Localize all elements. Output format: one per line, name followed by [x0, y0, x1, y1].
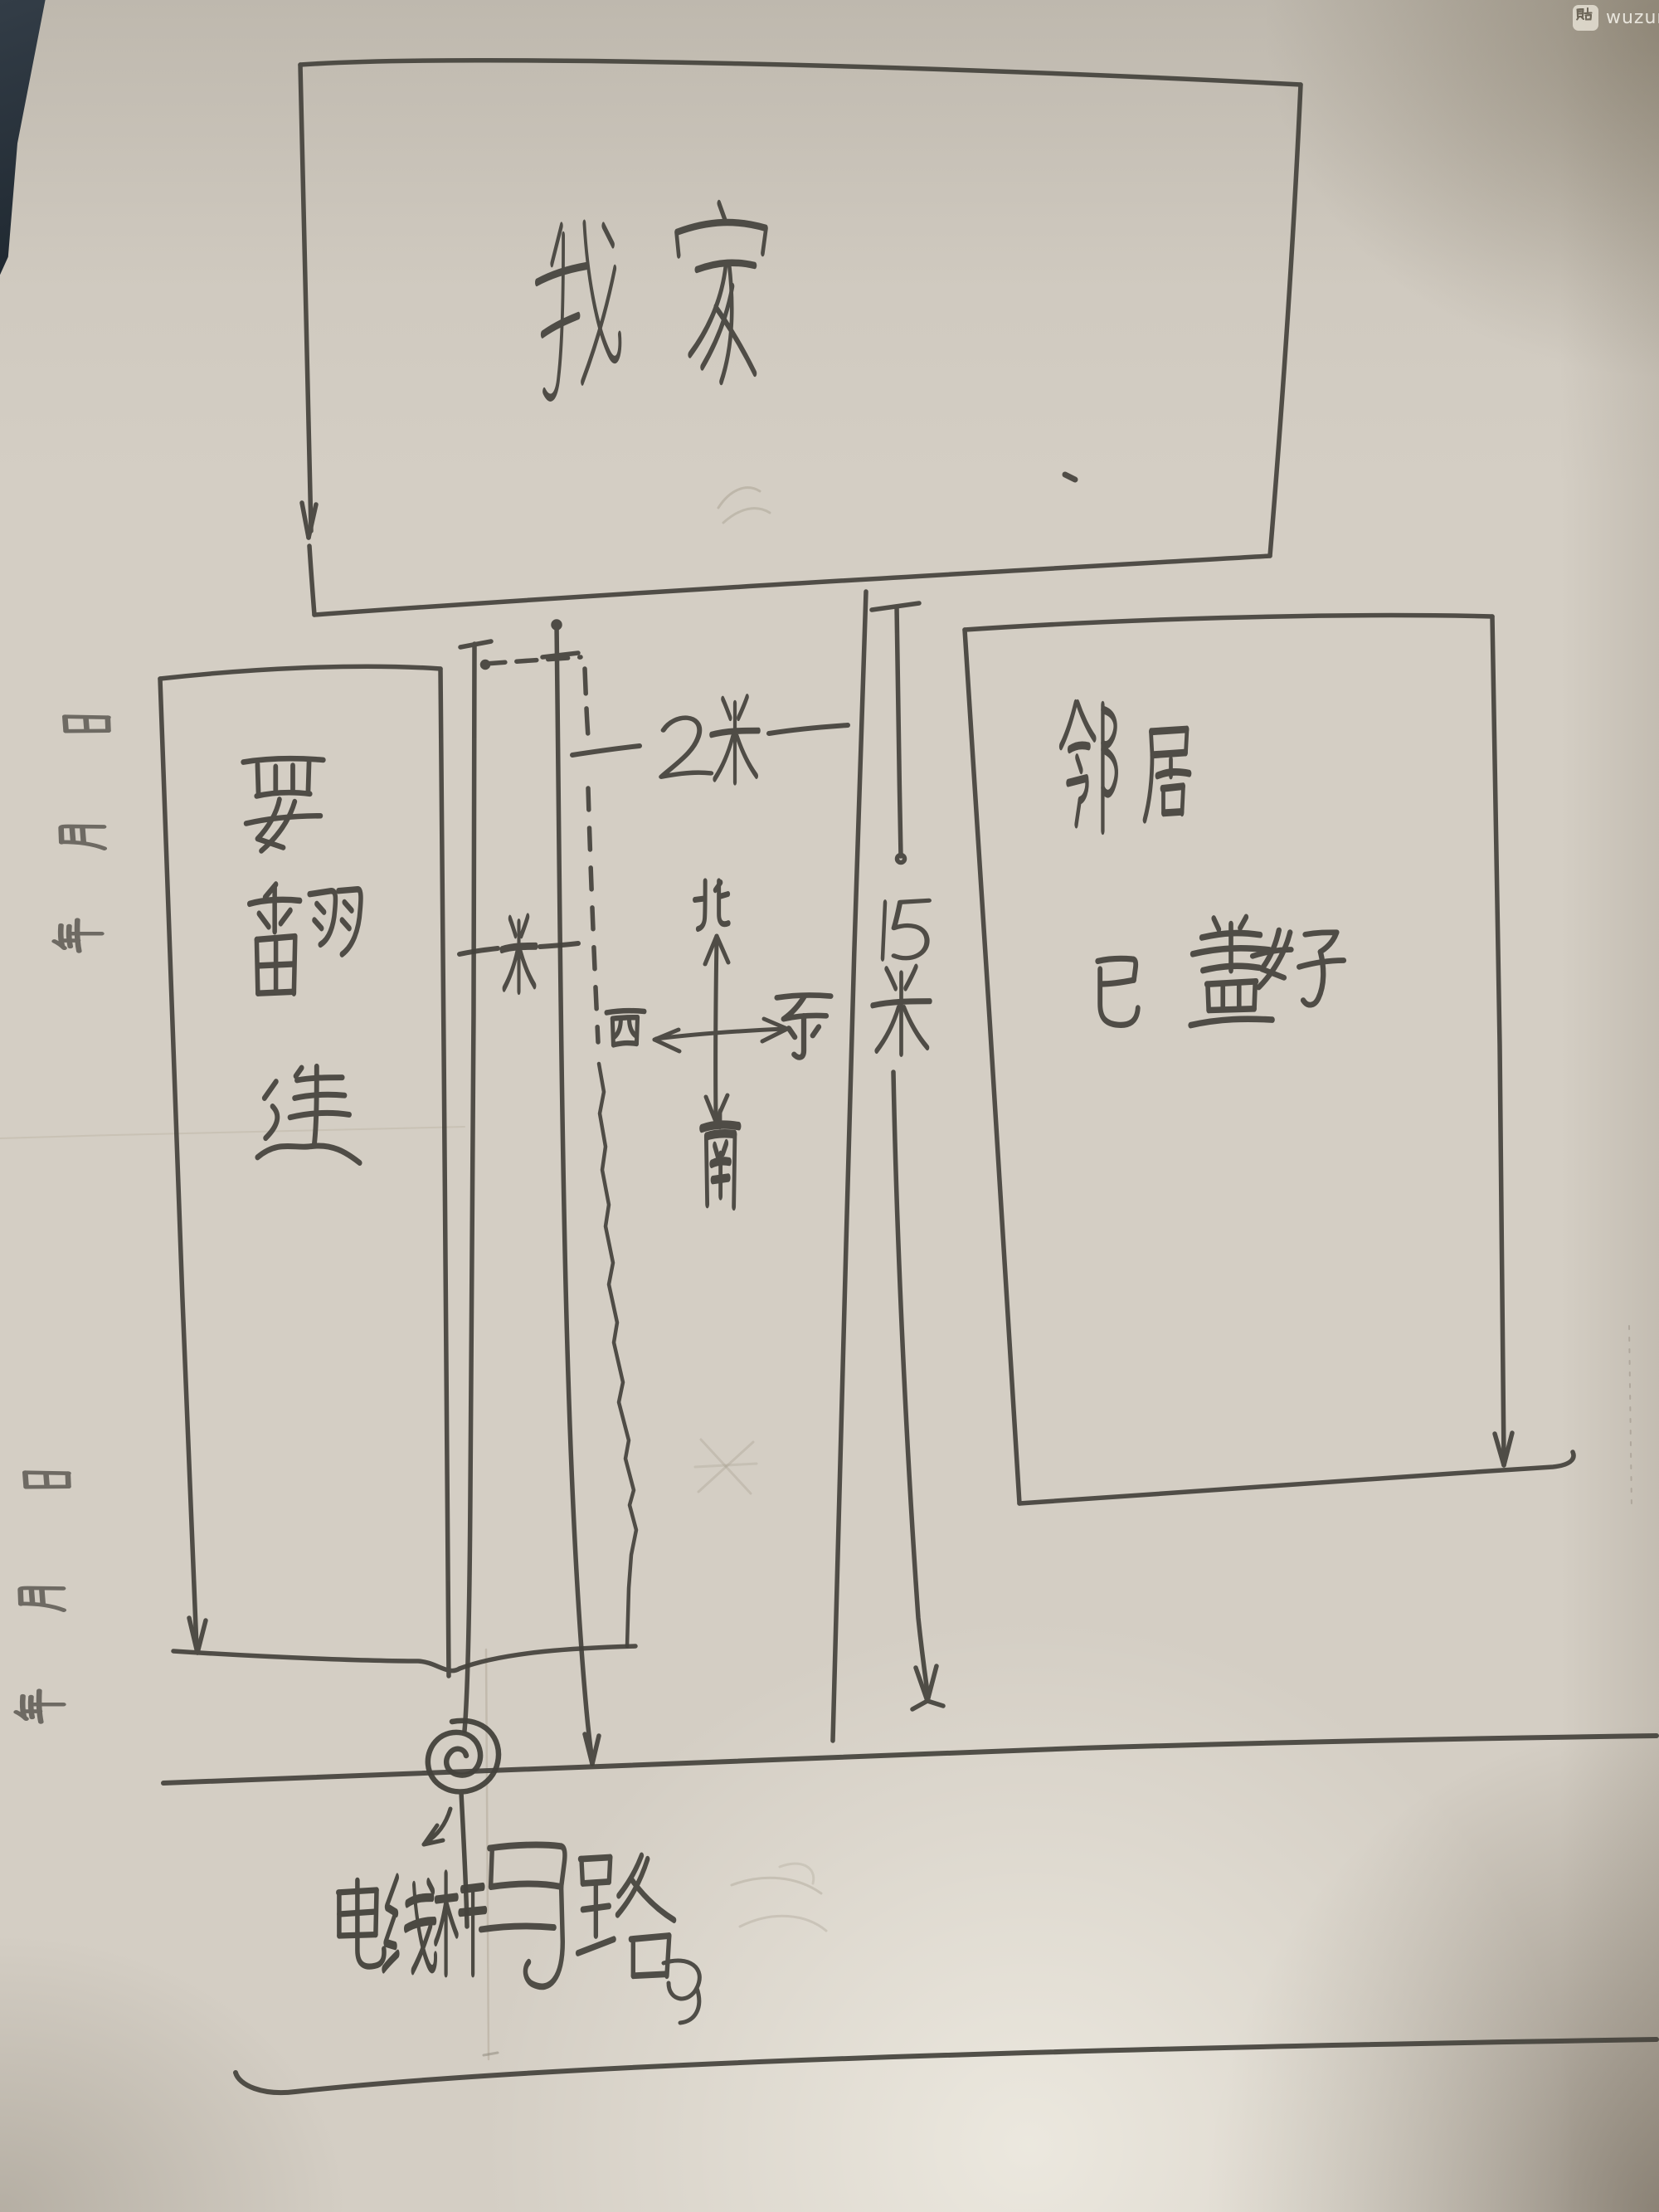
margin-day-2 [25, 1473, 68, 1487]
pole-spiral-symbol [428, 1721, 499, 1792]
pencil-marks [0, 488, 1632, 2059]
neighbor-distance-text: 15米 [871, 900, 967, 1051]
neighbor-status-text: 已盖好 [1078, 929, 1352, 1062]
road-top-edge [163, 1736, 1657, 1783]
my-home-text: 我家 [523, 216, 888, 480]
boundary-lines [460, 621, 636, 1764]
fifteen-meter-dimension [872, 603, 943, 1709]
margin-month-1 [61, 826, 105, 849]
west-text: 西 [604, 1008, 649, 1074]
watermark-text: wuzung [1606, 7, 1659, 28]
pole-text: 电线杆 [336, 1892, 510, 1976]
rebuild-text: 要翻建 [241, 755, 408, 1104]
right-boundary-line [833, 592, 866, 1741]
south-text: 南 [697, 1116, 763, 1212]
middle-gap-text: 2米 [655, 705, 777, 813]
margin-day-1 [65, 717, 108, 731]
west-gap-text: 一米 [460, 921, 577, 1005]
margin-year-2 [17, 1691, 64, 1722]
margin-print [17, 717, 109, 1722]
tieba-logo-icon [1573, 5, 1598, 31]
east-text: 东 [771, 996, 829, 1079]
compass-vertical-axis [716, 938, 717, 1120]
road-text: 马路 [489, 1859, 738, 2039]
watermark: wuzung [1573, 5, 1659, 31]
north-text: 北 [693, 879, 742, 952]
neighbor-name-text: 邻居 [1058, 722, 1257, 866]
rough-boundary-line [599, 1064, 636, 1646]
margin-year-1 [55, 920, 102, 952]
margin-month-2 [21, 1588, 64, 1610]
road-bottom-edge [236, 2039, 1657, 2093]
photo-of-sketch: wuzung 我家 要翻建 邻居 已盖好 一米 2米 15米 北 南 西 东 马… [0, 0, 1659, 2212]
